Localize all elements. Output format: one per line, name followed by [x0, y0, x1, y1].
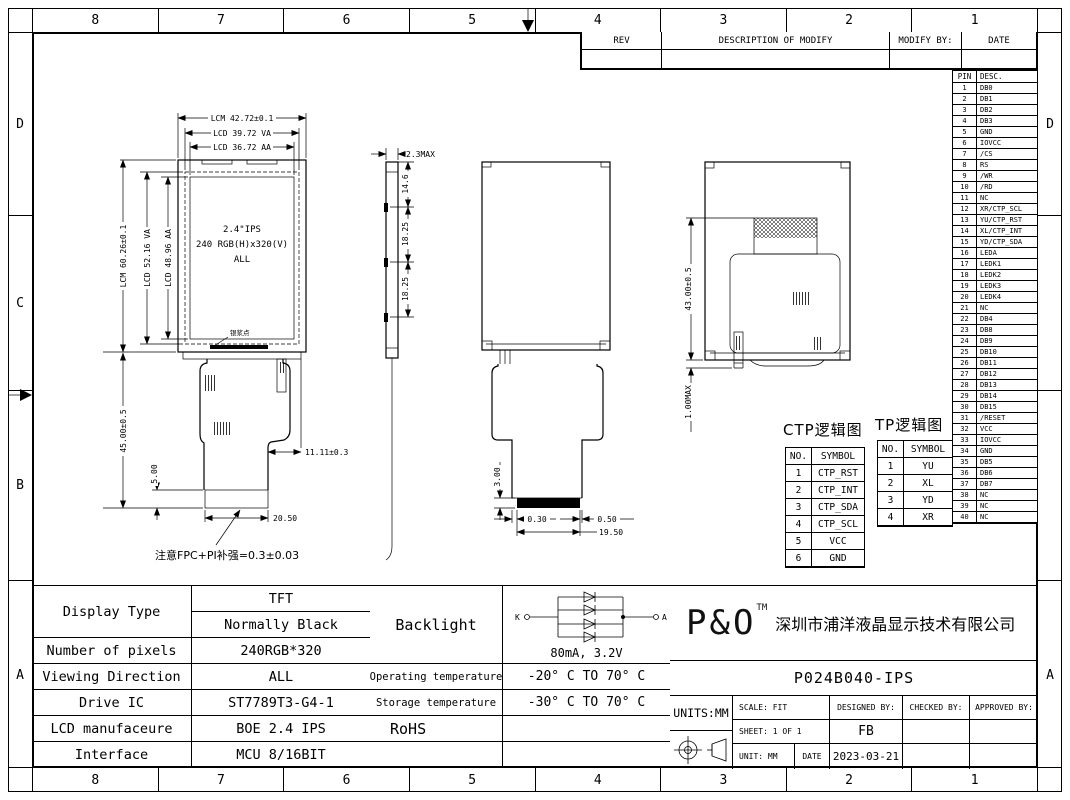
checked-by-cell: CHECKED BY:: [903, 696, 970, 720]
projection-symbol-cell: [670, 731, 733, 769]
empty-cell: [503, 716, 670, 742]
tp-no: 4: [878, 509, 904, 526]
pin-description: DB12: [977, 369, 1037, 380]
ctp-symbol: CTP_RST: [812, 465, 864, 482]
pin-number: 22: [953, 314, 977, 325]
unit-cell: UNIT: MM: [733, 744, 795, 769]
pin-number: 30: [953, 402, 977, 413]
tp-rows: 1 YU 2 XL 3 YD 4 XR: [878, 458, 952, 526]
no-header: NO.: [786, 448, 812, 465]
pin-number: 40: [953, 512, 977, 523]
pin-description: IOVCC: [977, 138, 1037, 149]
tp-symbol: XL: [904, 475, 952, 492]
zone-column-label: 6: [284, 8, 410, 32]
pin-row: 29 DB14: [953, 391, 1037, 402]
tp-symbol: YU: [904, 458, 952, 475]
zone-row-label: B: [8, 391, 32, 581]
pin-number: 13: [953, 215, 977, 226]
pin-row: 22 DB4: [953, 314, 1037, 325]
pin-table: PIN DESC. 1 DB0 2 DB1 3 DB2: [952, 70, 1038, 524]
pin-row: 30 DB15: [953, 402, 1037, 413]
ctp-rows: 1 CTP_RST 2 CTP_INT 3 CTP_SDA 4 CTP_SCL: [786, 465, 864, 567]
pin-number: 25: [953, 347, 977, 358]
ctp-no: 5: [786, 533, 812, 550]
ctp-table: NO. SYMBOL 1 CTP_RST 2 CTP_INT 3 CTP_SDA: [785, 447, 865, 568]
pin-number: 21: [953, 303, 977, 314]
pin-number: 39: [953, 501, 977, 512]
zone-band-bottom: 87654321: [32, 768, 1038, 792]
pin-description: YU/CTP_RST: [977, 215, 1037, 226]
pin-number: 20: [953, 292, 977, 303]
empty-cell: [370, 742, 503, 768]
spec-value: 240RGB*320: [192, 638, 370, 664]
pin-row: 13 YU/CTP_RST: [953, 215, 1037, 226]
spec-value: MCU 8/16BIT: [192, 742, 370, 768]
pin-row: 34 GND: [953, 446, 1037, 457]
pin-row: 31 /RESET: [953, 413, 1037, 424]
tp-no: 2: [878, 475, 904, 492]
pin-row: 10 /RD: [953, 182, 1037, 193]
tp-symbol: XR: [904, 509, 952, 526]
spec-value: BOE 2.4 IPS: [192, 716, 370, 742]
trademark-symbol: TM: [756, 603, 767, 613]
pin-row: 12 XR/CTP_SCL: [953, 204, 1037, 215]
zone-column-label: 4: [536, 768, 662, 792]
pin-row: 4 DB3: [953, 116, 1037, 127]
pin-row: 14 XL/CTP_INT: [953, 226, 1037, 237]
units-cell: UNITS:MM: [670, 696, 733, 731]
tp-table: NO. SYMBOL 1 YU 2 XL 3 YD: [877, 440, 953, 527]
title-block: P&OTM 深圳市浦洋液晶显示技术有限公司 P024B040-IPS UNITS…: [670, 585, 1038, 768]
pin-description: IOVCC: [977, 435, 1037, 446]
modify-by-header: MODIFY BY:: [890, 32, 962, 50]
ctp-symbol: VCC: [812, 533, 864, 550]
zone-row-label: C: [8, 216, 32, 391]
pin-description: DB2: [977, 105, 1037, 116]
empty-cell: [903, 720, 970, 744]
pin-number: 24: [953, 336, 977, 347]
pin-row: 11 NC: [953, 193, 1037, 204]
zone-column-label: 2: [787, 768, 913, 792]
ctp-no: 1: [786, 465, 812, 482]
rev-empty-cell: [962, 50, 1036, 68]
zone-band-right: DA: [1038, 32, 1062, 768]
pin-row: 19 LEDK3: [953, 281, 1037, 292]
pin-description: VCC: [977, 424, 1037, 435]
pin-row: 8 RS: [953, 160, 1037, 171]
rev-empty-cell: [582, 50, 662, 68]
pin-row: 36 DB6: [953, 468, 1037, 479]
po-logo: P&OTM: [686, 603, 767, 643]
tp-row: 4 XR: [878, 509, 952, 526]
pin-number: 31: [953, 413, 977, 424]
pin-number: 9: [953, 171, 977, 182]
symbol-header: SYMBOL: [812, 448, 864, 465]
rev-empty-cell: [662, 50, 890, 68]
date-value-cell: 2023-03-21: [830, 744, 903, 769]
pin-row: 18 LEDK2: [953, 270, 1037, 281]
zone-column-label: 4: [536, 8, 662, 32]
pin-description: DB11: [977, 358, 1037, 369]
ctp-no: 4: [786, 516, 812, 533]
pin-number: 37: [953, 479, 977, 490]
no-header: NO.: [878, 441, 904, 458]
backlight-rating: 80mA, 3.2V: [550, 646, 622, 660]
zone-column-label: 2: [787, 8, 913, 32]
approved-by-cell: APPROVED BY:: [970, 696, 1038, 720]
tp-row: 1 YU: [878, 458, 952, 475]
zone-column-label: 5: [410, 8, 536, 32]
spec-value: ST7789T3-G4-1: [192, 690, 370, 716]
operating-temp-value: -20° C TO 70° C: [503, 664, 670, 690]
rev-header: REV: [582, 32, 662, 50]
zone-row-label: D: [8, 33, 32, 216]
pin-description: /RESET: [977, 413, 1037, 424]
pin-description: DB3: [977, 116, 1037, 127]
pin-table-header: PIN DESC.: [953, 71, 1037, 83]
pin-description: LEDK1: [977, 259, 1037, 270]
pin-number: 28: [953, 380, 977, 391]
pin-row: 3 DB2: [953, 105, 1037, 116]
pin-description: /WR: [977, 171, 1037, 182]
ctp-row: 6 GND: [786, 550, 864, 567]
zone-band-left: DCBA: [8, 32, 32, 768]
storage-temp-label: Storage temperature: [370, 690, 503, 716]
pin-number: 18: [953, 270, 977, 281]
pin-description: NC: [977, 303, 1037, 314]
ctp-row: 4 CTP_SCL: [786, 516, 864, 533]
pin-description: LEDK3: [977, 281, 1037, 292]
pin-row: 21 NC: [953, 303, 1037, 314]
empty-cell: [503, 742, 670, 768]
pin-number: 32: [953, 424, 977, 435]
pin-description: DB14: [977, 391, 1037, 402]
pin-description: DB6: [977, 468, 1037, 479]
ctp-row: 5 VCC: [786, 533, 864, 550]
projection-symbol: [671, 732, 732, 768]
pin-number: 4: [953, 116, 977, 127]
pin-number: 35: [953, 457, 977, 468]
pin-number: 7: [953, 149, 977, 160]
pin-number: 15: [953, 237, 977, 248]
zone-column-label: 6: [284, 768, 410, 792]
tp-symbol: YD: [904, 492, 952, 509]
rev-empty-cell: [890, 50, 962, 68]
revision-table: REV DESCRIPTION OF MODIFY MODIFY BY: DAT…: [580, 32, 1038, 70]
pin-number: 12: [953, 204, 977, 215]
pin-description: XL/CTP_INT: [977, 226, 1037, 237]
pin-number: 27: [953, 369, 977, 380]
anode-label: A: [662, 613, 667, 622]
pin-description: DB10: [977, 347, 1037, 358]
pin-description: DB1: [977, 94, 1037, 105]
zone-row-label: A: [1038, 581, 1062, 769]
pin-number: 8: [953, 160, 977, 171]
tp-table-title: TP逻辑图: [875, 414, 943, 435]
empty-cell: [970, 720, 1038, 744]
pin-description: LEDA: [977, 248, 1037, 259]
zone-column-label: 1: [912, 8, 1037, 32]
empty-cell: [970, 744, 1038, 769]
title-block-grid: UNITS:MM SCALE: FIT SHEET: 1 OF 1 U: [670, 696, 1038, 769]
pin-row: 1 DB0: [953, 83, 1037, 94]
part-number: P024B040-IPS: [670, 661, 1038, 696]
date-label-cell: DATE: [795, 744, 830, 769]
pin-description: DB15: [977, 402, 1037, 413]
pin-row: 39 NC: [953, 501, 1037, 512]
pin-row: 25 DB10: [953, 347, 1037, 358]
symbol-header: SYMBOL: [904, 441, 952, 458]
zone-column-label: 8: [33, 768, 159, 792]
ctp-table-title: CTP逻辑图: [783, 419, 863, 440]
tp-row: 3 YD: [878, 492, 952, 509]
pin-description: NC: [977, 490, 1037, 501]
spec-value: ALL: [192, 664, 370, 690]
spec-value: TFT: [192, 586, 370, 612]
ctp-row: 2 CTP_INT: [786, 482, 864, 499]
pin-row: 20 LEDK4: [953, 292, 1037, 303]
pin-row: 33 IOVCC: [953, 435, 1037, 446]
pin-number: 11: [953, 193, 977, 204]
pin-number: 2: [953, 94, 977, 105]
zone-band-top: 87654321: [32, 8, 1038, 32]
pin-row: 15 YD/CTP_SDA: [953, 237, 1037, 248]
pin-number: 10: [953, 182, 977, 193]
spec-label: LCD manufaceure: [32, 716, 192, 742]
ctp-no: 6: [786, 550, 812, 567]
pin-row: 7 /CS: [953, 149, 1037, 160]
pin-rows: 1 DB0 2 DB1 3 DB2 4 DB3: [953, 83, 1037, 523]
pin-number: 1: [953, 83, 977, 94]
ctp-symbol: CTP_SDA: [812, 499, 864, 516]
pin-row: 27 DB12: [953, 369, 1037, 380]
pin-row: 37 DB7: [953, 479, 1037, 490]
spec-label: Display Type: [32, 586, 192, 638]
tp-row: 2 XL: [878, 475, 952, 492]
desc-header: DESC.: [977, 71, 1037, 83]
ctp-symbol: CTP_INT: [812, 482, 864, 499]
pin-row: 23 DB8: [953, 325, 1037, 336]
pin-description: DB8: [977, 325, 1037, 336]
ctp-symbol: GND: [812, 550, 864, 567]
pin-number: 34: [953, 446, 977, 457]
sheet-cell: SHEET: 1 OF 1: [733, 720, 830, 744]
spec-table: Display Type TFT Normally Black Number o…: [32, 585, 370, 768]
pin-number: 3: [953, 105, 977, 116]
zone-column-label: 7: [159, 768, 285, 792]
pin-description: XR/CTP_SCL: [977, 204, 1037, 215]
logo-row: P&OTM 深圳市浦洋液晶显示技术有限公司: [670, 586, 1038, 661]
pin-number: 19: [953, 281, 977, 292]
pin-description: DB13: [977, 380, 1037, 391]
spec-value: Normally Black: [192, 612, 370, 638]
pin-description: /CS: [977, 149, 1037, 160]
tp-no: 3: [878, 492, 904, 509]
pin-row: 6 IOVCC: [953, 138, 1037, 149]
pin-description: RS: [977, 160, 1037, 171]
pin-row: 17 LEDK1: [953, 259, 1037, 270]
pin-description: NC: [977, 501, 1037, 512]
pin-number: 17: [953, 259, 977, 270]
pin-description: /RD: [977, 182, 1037, 193]
pin-row: 32 VCC: [953, 424, 1037, 435]
spec-label: Number of pixels: [32, 638, 192, 664]
pin-description: GND: [977, 127, 1037, 138]
storage-temp-value: -30° C TO 70° C: [503, 690, 670, 716]
backlight-diagram-cell: K A 80mA, 3.2V: [503, 586, 670, 664]
pin-description: NC: [977, 512, 1037, 523]
zone-row-label: [1038, 216, 1062, 391]
spec-label: Interface: [32, 742, 192, 768]
zone-row-label: [1038, 391, 1062, 581]
backlight-label: Backlight: [370, 586, 503, 664]
pin-row: 2 DB1: [953, 94, 1037, 105]
pin-row: 24 DB9: [953, 336, 1037, 347]
zone-column-label: 7: [159, 8, 285, 32]
zone-column-label: 1: [912, 768, 1037, 792]
pin-number: 29: [953, 391, 977, 402]
zone-column-label: 5: [410, 768, 536, 792]
pin-description: NC: [977, 193, 1037, 204]
scale-cell: SCALE: FIT: [733, 696, 830, 720]
pin-number: 23: [953, 325, 977, 336]
pin-number: 33: [953, 435, 977, 446]
pin-row: 40 NC: [953, 512, 1037, 523]
tp-header-row: NO. SYMBOL: [878, 441, 952, 458]
pin-description: DB9: [977, 336, 1037, 347]
date-header: DATE: [962, 32, 1036, 50]
pin-row: 38 NC: [953, 490, 1037, 501]
zone-row-label: D: [1038, 33, 1062, 216]
designed-by-cell: DESIGNED BY:: [830, 696, 903, 720]
pin-row: 16 LEDA: [953, 248, 1037, 259]
company-name: 深圳市浦洋液晶显示技术有限公司: [775, 611, 1015, 635]
pin-description: YD/CTP_SDA: [977, 237, 1037, 248]
zone-column-label: 3: [661, 8, 787, 32]
pin-number: 36: [953, 468, 977, 479]
pin-header: PIN: [953, 71, 977, 83]
cathode-label: K: [515, 613, 520, 622]
pin-number: 16: [953, 248, 977, 259]
pin-number: 5: [953, 127, 977, 138]
pin-row: 5 GND: [953, 127, 1037, 138]
pin-description: LEDK2: [977, 270, 1037, 281]
empty-cell: [903, 744, 970, 769]
description-header: DESCRIPTION OF MODIFY: [662, 32, 890, 50]
env-table: Backlight: [370, 585, 670, 768]
pin-row: 28 DB13: [953, 380, 1037, 391]
pin-description: DB0: [977, 83, 1037, 94]
pin-number: 6: [953, 138, 977, 149]
pin-description: GND: [977, 446, 1037, 457]
pin-number: 38: [953, 490, 977, 501]
pin-row: 9 /WR: [953, 171, 1037, 182]
ctp-no: 3: [786, 499, 812, 516]
zone-row-label: A: [8, 581, 32, 769]
pin-row: 35 DB5: [953, 457, 1037, 468]
spec-label: Drive IC: [32, 690, 192, 716]
ctp-header-row: NO. SYMBOL: [786, 448, 864, 465]
ctp-no: 2: [786, 482, 812, 499]
operating-temp-label: Operating temperature: [370, 664, 503, 690]
rohs-label: RoHS: [370, 716, 503, 742]
designer-cell: FB: [830, 720, 903, 744]
pin-row: 26 DB11: [953, 358, 1037, 369]
ctp-symbol: CTP_SCL: [812, 516, 864, 533]
spec-label: Viewing Direction: [32, 664, 192, 690]
led-symbols: [584, 592, 595, 642]
backlight-led-diagram: K A: [503, 589, 670, 645]
pin-description: DB7: [977, 479, 1037, 490]
zone-column-label: 3: [661, 768, 787, 792]
pin-number: 14: [953, 226, 977, 237]
pin-description: DB4: [977, 314, 1037, 325]
zone-column-label: 8: [33, 8, 159, 32]
pin-description: LEDK4: [977, 292, 1037, 303]
pin-number: 26: [953, 358, 977, 369]
ctp-row: 1 CTP_RST: [786, 465, 864, 482]
pin-description: DB5: [977, 457, 1037, 468]
datasheet-page: 87654321 87654321 DCBA DA REV DESCRIPTIO…: [0, 0, 1070, 800]
ctp-row: 3 CTP_SDA: [786, 499, 864, 516]
tp-no: 1: [878, 458, 904, 475]
